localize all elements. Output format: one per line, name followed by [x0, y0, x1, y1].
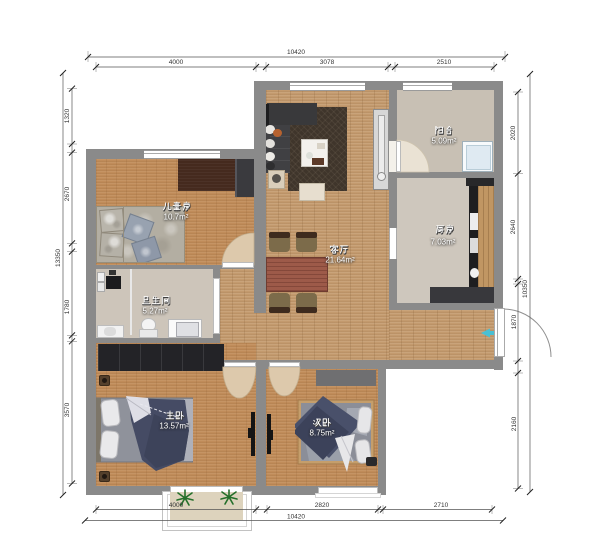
svg-text:10350: 10350: [522, 280, 529, 298]
svg-text:1870: 1870: [511, 314, 518, 329]
svg-text:2640: 2640: [510, 219, 517, 234]
svg-text:10420: 10420: [287, 514, 305, 521]
svg-text:10420: 10420: [287, 49, 305, 56]
svg-text:1320: 1320: [64, 108, 71, 123]
svg-text:2710: 2710: [434, 502, 449, 509]
svg-text:2670: 2670: [64, 186, 71, 201]
svg-text:2160: 2160: [511, 416, 518, 431]
svg-text:2820: 2820: [315, 502, 330, 509]
svg-text:2510: 2510: [437, 59, 452, 66]
svg-text:1780: 1780: [64, 299, 71, 314]
svg-text:3570: 3570: [64, 402, 71, 417]
svg-text:13350: 13350: [55, 249, 62, 267]
svg-text:4000: 4000: [169, 59, 184, 66]
svg-text:3078: 3078: [320, 59, 335, 66]
svg-text:4000: 4000: [169, 502, 184, 509]
svg-text:2020: 2020: [510, 125, 517, 140]
